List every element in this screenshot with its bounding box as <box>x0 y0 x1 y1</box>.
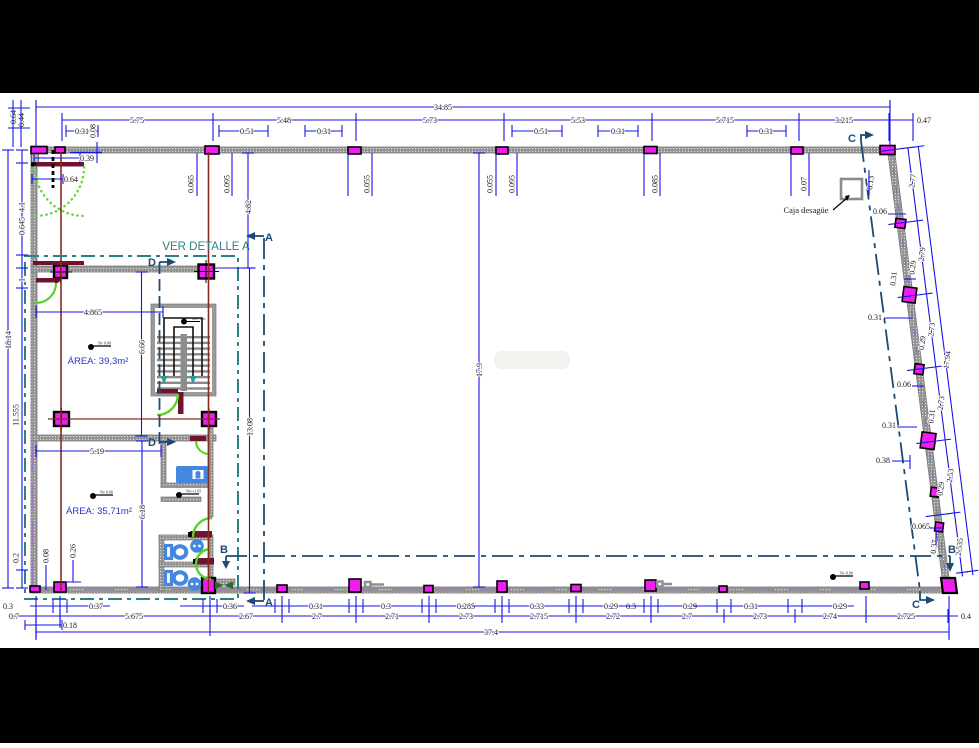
svg-text:0.055: 0.055 <box>363 175 372 193</box>
svg-text:0.18: 0.18 <box>63 621 77 630</box>
svg-text:5.75: 5.75 <box>130 116 144 125</box>
svg-text:2.71: 2.71 <box>385 612 399 621</box>
svg-text:2.715: 2.715 <box>530 612 548 621</box>
svg-text:ÁREA: 39,3m²: ÁREA: 39,3m² <box>68 356 129 367</box>
svg-text:3.215: 3.215 <box>835 116 853 125</box>
svg-text:0.095: 0.095 <box>508 175 517 193</box>
svg-text:0.29: 0.29 <box>917 335 928 350</box>
svg-text:A: A <box>265 597 273 609</box>
svg-text:0.47: 0.47 <box>917 116 931 125</box>
svg-text:0.51: 0.51 <box>240 127 254 136</box>
svg-text:0.31: 0.31 <box>611 127 625 136</box>
svg-text:Nv 0.00: Nv 0.00 <box>98 341 111 346</box>
svg-text:4.1: 4.1 <box>18 202 27 212</box>
svg-text:2.7: 2.7 <box>682 612 692 621</box>
svg-text:0.29: 0.29 <box>907 260 918 275</box>
svg-text:6.18: 6.18 <box>138 505 147 519</box>
svg-text:5.19: 5.19 <box>90 447 104 456</box>
svg-text:5.675: 5.675 <box>125 612 143 621</box>
svg-text:5.53: 5.53 <box>571 116 585 125</box>
svg-text:0.08: 0.08 <box>89 124 98 138</box>
svg-text:VER DETALLE A: VER DETALLE A <box>162 241 250 253</box>
svg-text:D: D <box>148 257 156 269</box>
svg-text:0.51: 0.51 <box>534 127 548 136</box>
svg-text:2.7: 2.7 <box>312 612 322 621</box>
svg-text:2.73: 2.73 <box>753 612 767 621</box>
svg-text:0.645: 0.645 <box>18 217 27 235</box>
svg-text:0.29: 0.29 <box>604 602 618 611</box>
svg-text:0.31: 0.31 <box>75 127 89 136</box>
svg-text:34.85: 34.85 <box>434 103 452 112</box>
svg-text:2.73: 2.73 <box>926 322 937 337</box>
svg-text:0.39: 0.39 <box>80 154 94 163</box>
svg-text:0.08: 0.08 <box>42 549 51 563</box>
svg-text:0.3: 0.3 <box>381 602 391 611</box>
svg-text:Nv 0.00: Nv 0.00 <box>840 571 853 576</box>
svg-text:5.715: 5.715 <box>716 116 734 125</box>
svg-text:0.31: 0.31 <box>309 602 323 611</box>
svg-text:0.06: 0.06 <box>873 207 887 216</box>
svg-text:37.4: 37.4 <box>484 628 498 637</box>
svg-text:0.4: 0.4 <box>961 612 971 621</box>
svg-text:B: B <box>220 544 228 556</box>
svg-text:2.77: 2.77 <box>907 173 918 188</box>
svg-text:0.055: 0.055 <box>486 175 495 193</box>
svg-text:2.72: 2.72 <box>606 612 620 621</box>
svg-text:17.9: 17.9 <box>475 363 484 377</box>
svg-text:2.67: 2.67 <box>239 612 253 621</box>
svg-text:2.74: 2.74 <box>823 612 837 621</box>
svg-text:0.7: 0.7 <box>9 612 19 621</box>
svg-text:0.37: 0.37 <box>929 539 940 554</box>
svg-text:13.08: 13.08 <box>245 418 254 436</box>
svg-text:C: C <box>848 133 856 145</box>
svg-text:4.865: 4.865 <box>84 308 102 317</box>
svg-text:5.73: 5.73 <box>423 116 437 125</box>
svg-text:0.31: 0.31 <box>317 127 331 136</box>
svg-text:Nv 0.00: Nv 0.00 <box>100 490 113 495</box>
svg-text:Niv+1.35: Niv+1.35 <box>192 317 206 321</box>
svg-text:2.53: 2.53 <box>945 468 956 483</box>
svg-text:0.085: 0.085 <box>651 175 660 193</box>
svg-text:0.07: 0.07 <box>800 177 809 191</box>
svg-text:0.31: 0.31 <box>868 313 882 322</box>
svg-text:0.29: 0.29 <box>936 481 947 496</box>
svg-text:11.555: 11.555 <box>12 404 21 426</box>
svg-text:0.37: 0.37 <box>89 602 103 611</box>
svg-text:0.06: 0.06 <box>897 380 911 389</box>
svg-text:0.31: 0.31 <box>882 421 896 430</box>
svg-text:ÁREA: 35,71m²: ÁREA: 35,71m² <box>66 506 132 517</box>
svg-text:2.73: 2.73 <box>459 612 473 621</box>
svg-text:0.64: 0.64 <box>64 175 78 184</box>
svg-text:0.2: 0.2 <box>12 553 21 563</box>
svg-text:0.13: 0.13 <box>865 175 876 190</box>
svg-text:Caja desagüe: Caja desagüe <box>783 205 828 215</box>
svg-text:2.79: 2.79 <box>917 247 928 262</box>
svg-text:C: C <box>912 599 920 611</box>
svg-text:0.065: 0.065 <box>912 522 930 531</box>
svg-text:5.48: 5.48 <box>277 116 291 125</box>
svg-text:0.29: 0.29 <box>833 602 847 611</box>
svg-text:4.82: 4.82 <box>244 200 253 214</box>
svg-text:0.31: 0.31 <box>759 127 773 136</box>
svg-text:D: D <box>148 437 156 449</box>
svg-text:6.66: 6.66 <box>137 340 146 354</box>
svg-text:0.3: 0.3 <box>3 602 13 611</box>
svg-text:A: A <box>265 232 273 244</box>
svg-text:0.31: 0.31 <box>744 602 758 611</box>
svg-text:0.31: 0.31 <box>888 271 899 286</box>
svg-text:2.725: 2.725 <box>897 612 915 621</box>
svg-text:0.095: 0.095 <box>223 175 232 193</box>
svg-text:0.31: 0.31 <box>926 409 937 424</box>
svg-text:Niv+1.05: Niv+1.05 <box>186 489 201 494</box>
svg-text:1: 1 <box>18 278 27 282</box>
svg-text:0.36: 0.36 <box>223 602 237 611</box>
svg-text:0.38: 0.38 <box>876 456 890 465</box>
svg-text:0.33: 0.33 <box>530 602 544 611</box>
svg-text:0.26: 0.26 <box>69 544 78 558</box>
svg-text:0.065: 0.065 <box>187 175 196 193</box>
svg-text:18.14: 18.14 <box>4 331 13 349</box>
svg-text:2.73: 2.73 <box>936 396 947 411</box>
